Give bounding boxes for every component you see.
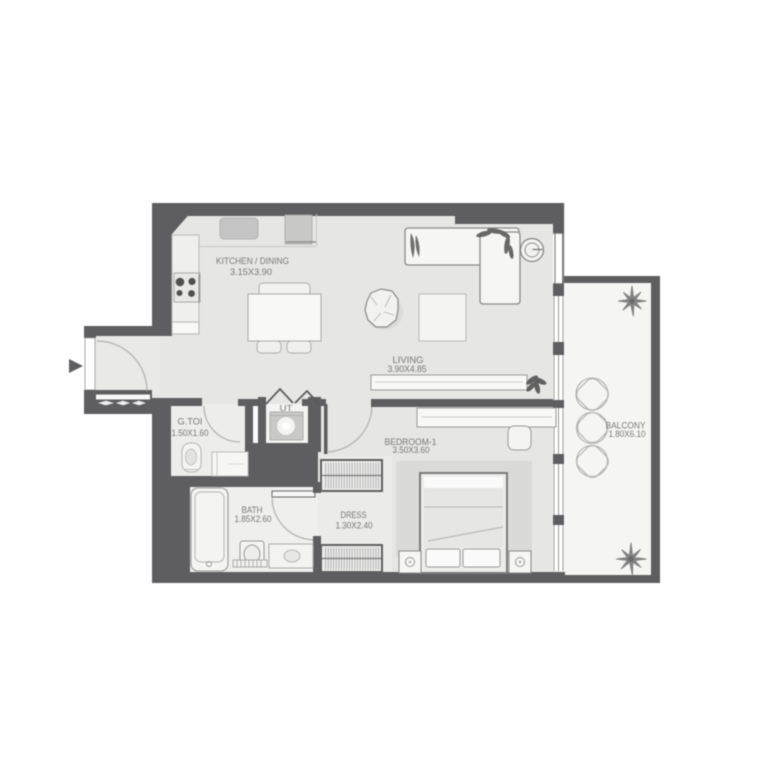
- svg-text:G.TOI: G.TOI: [178, 417, 203, 427]
- svg-text:KITCHEN / DINING: KITCHEN / DINING: [216, 256, 289, 266]
- svg-text:1.80X6.10: 1.80X6.10: [609, 429, 646, 439]
- svg-text:1.50X1.60: 1.50X1.60: [172, 428, 209, 438]
- svg-text:3.50X3.60: 3.50X3.60: [393, 445, 430, 455]
- svg-text:1.30X2.40: 1.30X2.40: [336, 521, 373, 531]
- svg-text:UT: UT: [280, 404, 293, 413]
- svg-text:3.90X4.85: 3.90X4.85: [388, 364, 427, 374]
- svg-text:DRESS: DRESS: [341, 510, 367, 520]
- svg-text:1.85X2.60: 1.85X2.60: [235, 514, 272, 524]
- svg-text:3.15X3.90: 3.15X3.90: [230, 267, 272, 277]
